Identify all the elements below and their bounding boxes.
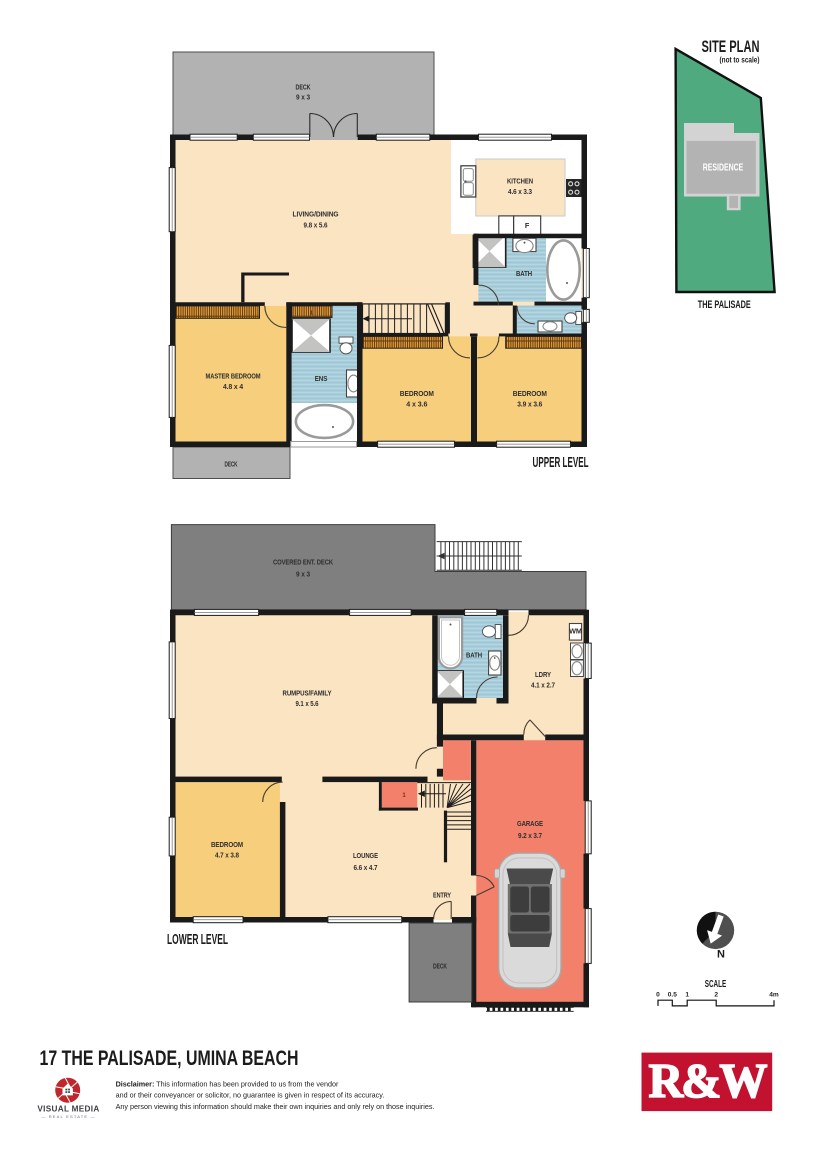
- svg-text:BATH: BATH: [466, 651, 482, 660]
- svg-text:4.6 x 3.3: 4.6 x 3.3: [508, 187, 532, 196]
- svg-text:0: 0: [656, 992, 660, 999]
- svg-text:1: 1: [685, 992, 689, 999]
- svg-text:BEDROOM: BEDROOM: [211, 840, 243, 849]
- svg-text:THE PALISADE: THE PALISADE: [698, 299, 751, 311]
- svg-text:N: N: [717, 949, 725, 961]
- svg-text:4.7 x 3.8: 4.7 x 3.8: [215, 851, 239, 860]
- svg-text:UPPER LEVEL: UPPER LEVEL: [533, 455, 589, 471]
- svg-text:9 x 3: 9 x 3: [296, 93, 310, 102]
- svg-text:4.1 x 2.7: 4.1 x 2.7: [531, 681, 555, 690]
- svg-text:4.8 x 4: 4.8 x 4: [223, 382, 244, 391]
- svg-text:and or their conveyancer or so: and or their conveyancer or solicitor, n…: [116, 1091, 385, 1100]
- svg-text:RESIDENCE: RESIDENCE: [703, 163, 744, 174]
- svg-text:LOWER LEVEL: LOWER LEVEL: [167, 932, 228, 948]
- svg-text:KITCHEN: KITCHEN: [507, 177, 533, 186]
- svg-text:4 x 3.6: 4 x 3.6: [406, 400, 427, 409]
- svg-text:RUMPUS/FAMILY: RUMPUS/FAMILY: [283, 689, 332, 698]
- svg-text:BATH: BATH: [516, 269, 532, 278]
- svg-text:DECK: DECK: [296, 83, 312, 92]
- svg-text:MASTER BEDROOM: MASTER BEDROOM: [206, 372, 261, 381]
- svg-text:BEDROOM: BEDROOM: [513, 389, 547, 398]
- svg-text:1: 1: [310, 311, 313, 317]
- svg-text:LOUNGE: LOUNGE: [353, 851, 378, 860]
- svg-text:9.2 x 3.7: 9.2 x 3.7: [518, 831, 542, 840]
- svg-text:2: 2: [714, 992, 718, 999]
- svg-text:WM: WM: [569, 627, 582, 636]
- svg-text:BEDROOM: BEDROOM: [400, 389, 434, 398]
- svg-text:9 x 3: 9 x 3: [296, 570, 310, 579]
- svg-text:SITE PLAN: SITE PLAN: [702, 38, 760, 56]
- svg-text:COVERED ENT. DECK: COVERED ENT. DECK: [273, 558, 334, 567]
- svg-text:(not to scale): (not to scale): [720, 55, 760, 65]
- svg-text:9.1 x 5.6: 9.1 x 5.6: [296, 699, 319, 708]
- svg-text:LDRY: LDRY: [535, 670, 551, 679]
- svg-text:4m: 4m: [769, 992, 779, 999]
- svg-text:9.8 x 5.6: 9.8 x 5.6: [304, 221, 328, 230]
- svg-text:17 THE PALISADE, UMINA BEACH: 17 THE PALISADE, UMINA BEACH: [40, 1046, 299, 1070]
- svg-text:3.9 x 3.6: 3.9 x 3.6: [517, 400, 542, 409]
- svg-text:SCALE: SCALE: [705, 979, 727, 990]
- svg-text:Any person viewing this inform: Any person viewing this information shou…: [116, 1102, 435, 1111]
- svg-text:0.5: 0.5: [668, 992, 677, 999]
- svg-text:LIVING/DINING: LIVING/DINING: [293, 210, 339, 219]
- svg-text:ENS: ENS: [315, 374, 328, 383]
- svg-text:Disclaimer: This information h: Disclaimer: This information has been pr…: [116, 1080, 339, 1089]
- svg-text:VISUAL MEDIA: VISUAL MEDIA: [37, 1105, 99, 1114]
- svg-text:— REAL ESTATE —: — REAL ESTATE —: [41, 1114, 96, 1119]
- svg-text:ENTRY: ENTRY: [433, 891, 451, 900]
- svg-text:DECK: DECK: [433, 962, 448, 971]
- svg-text:R&W: R&W: [649, 1053, 768, 1108]
- svg-text:GARAGE: GARAGE: [517, 819, 543, 828]
- svg-text:DECK: DECK: [225, 460, 239, 469]
- svg-text:6.6 x 4.7: 6.6 x 4.7: [354, 863, 378, 872]
- svg-text:F: F: [525, 221, 530, 230]
